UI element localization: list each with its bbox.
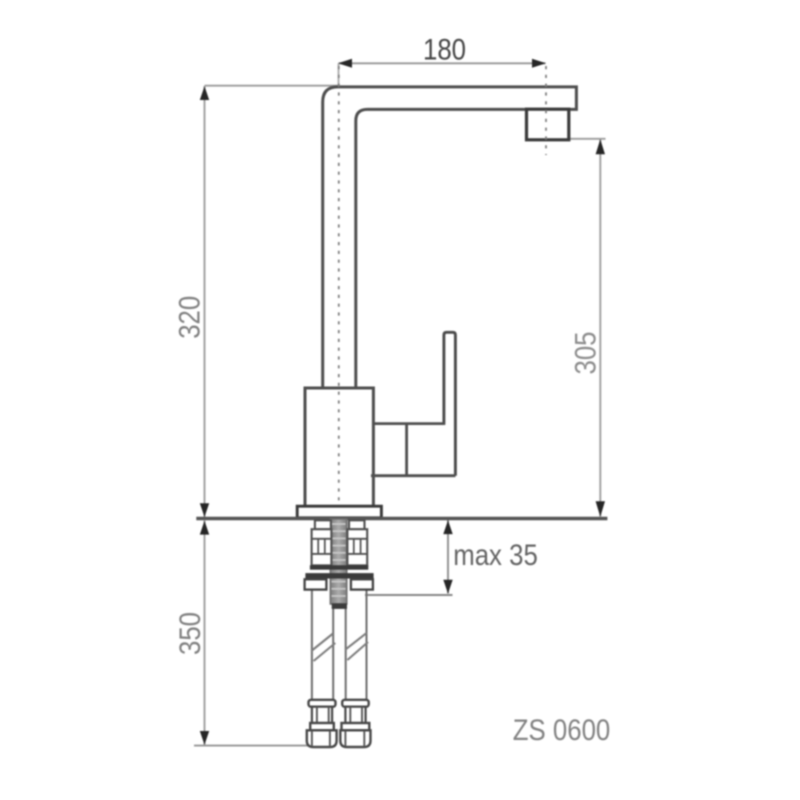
svg-text:320: 320 — [173, 296, 206, 339]
svg-text:305: 305 — [569, 331, 602, 374]
svg-text:350: 350 — [173, 612, 206, 655]
svg-text:ZS 0600: ZS 0600 — [513, 713, 611, 746]
svg-text:max 35: max 35 — [453, 538, 538, 571]
svg-text:180: 180 — [423, 33, 466, 66]
